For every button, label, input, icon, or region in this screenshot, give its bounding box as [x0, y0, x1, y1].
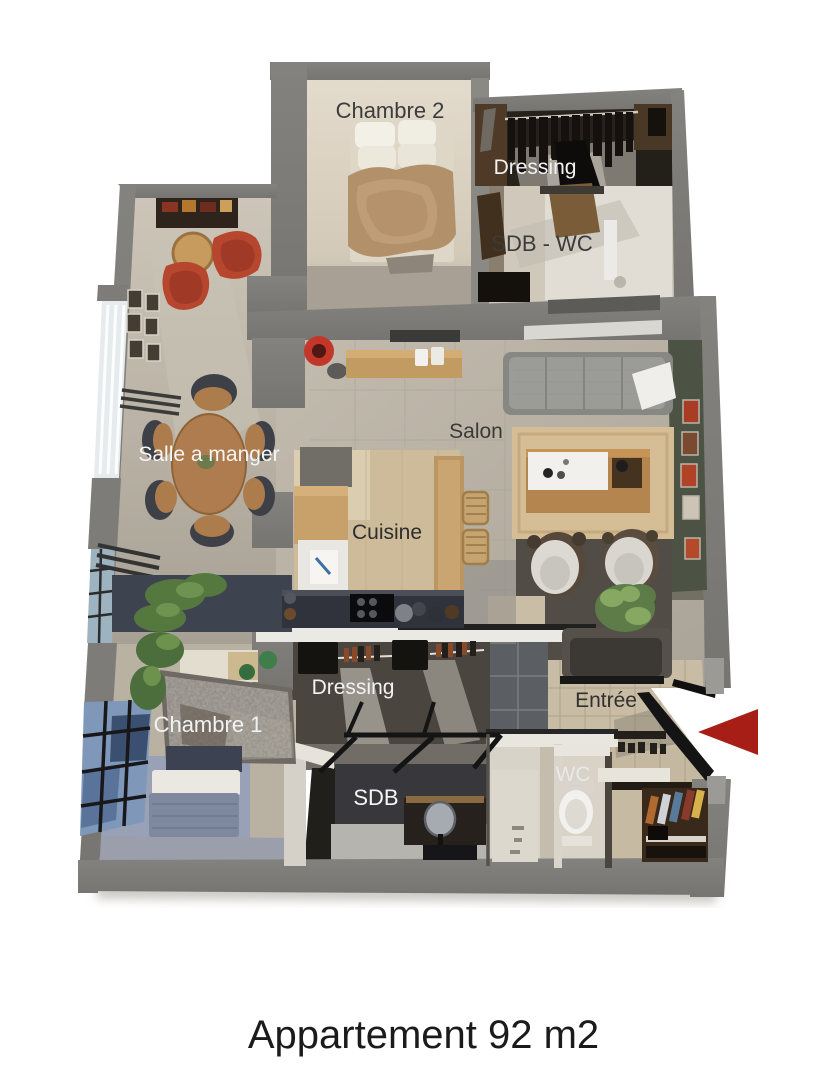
svg-text:Cuisine: Cuisine: [352, 521, 422, 544]
svg-text:Dressing: Dressing: [312, 676, 395, 699]
svg-text:SDB - WC: SDB - WC: [491, 231, 593, 256]
svg-text:Salon: Salon: [449, 420, 503, 443]
svg-text:WC: WC: [556, 763, 591, 786]
svg-text:SDB: SDB: [353, 785, 398, 810]
svg-text:Chambre 1: Chambre 1: [154, 712, 263, 737]
svg-text:Entrée: Entrée: [575, 689, 637, 712]
svg-text:Salle a manger: Salle a manger: [138, 443, 279, 466]
svg-text:Chambre 2: Chambre 2: [336, 98, 445, 123]
svg-text:Dressing: Dressing: [494, 156, 577, 179]
